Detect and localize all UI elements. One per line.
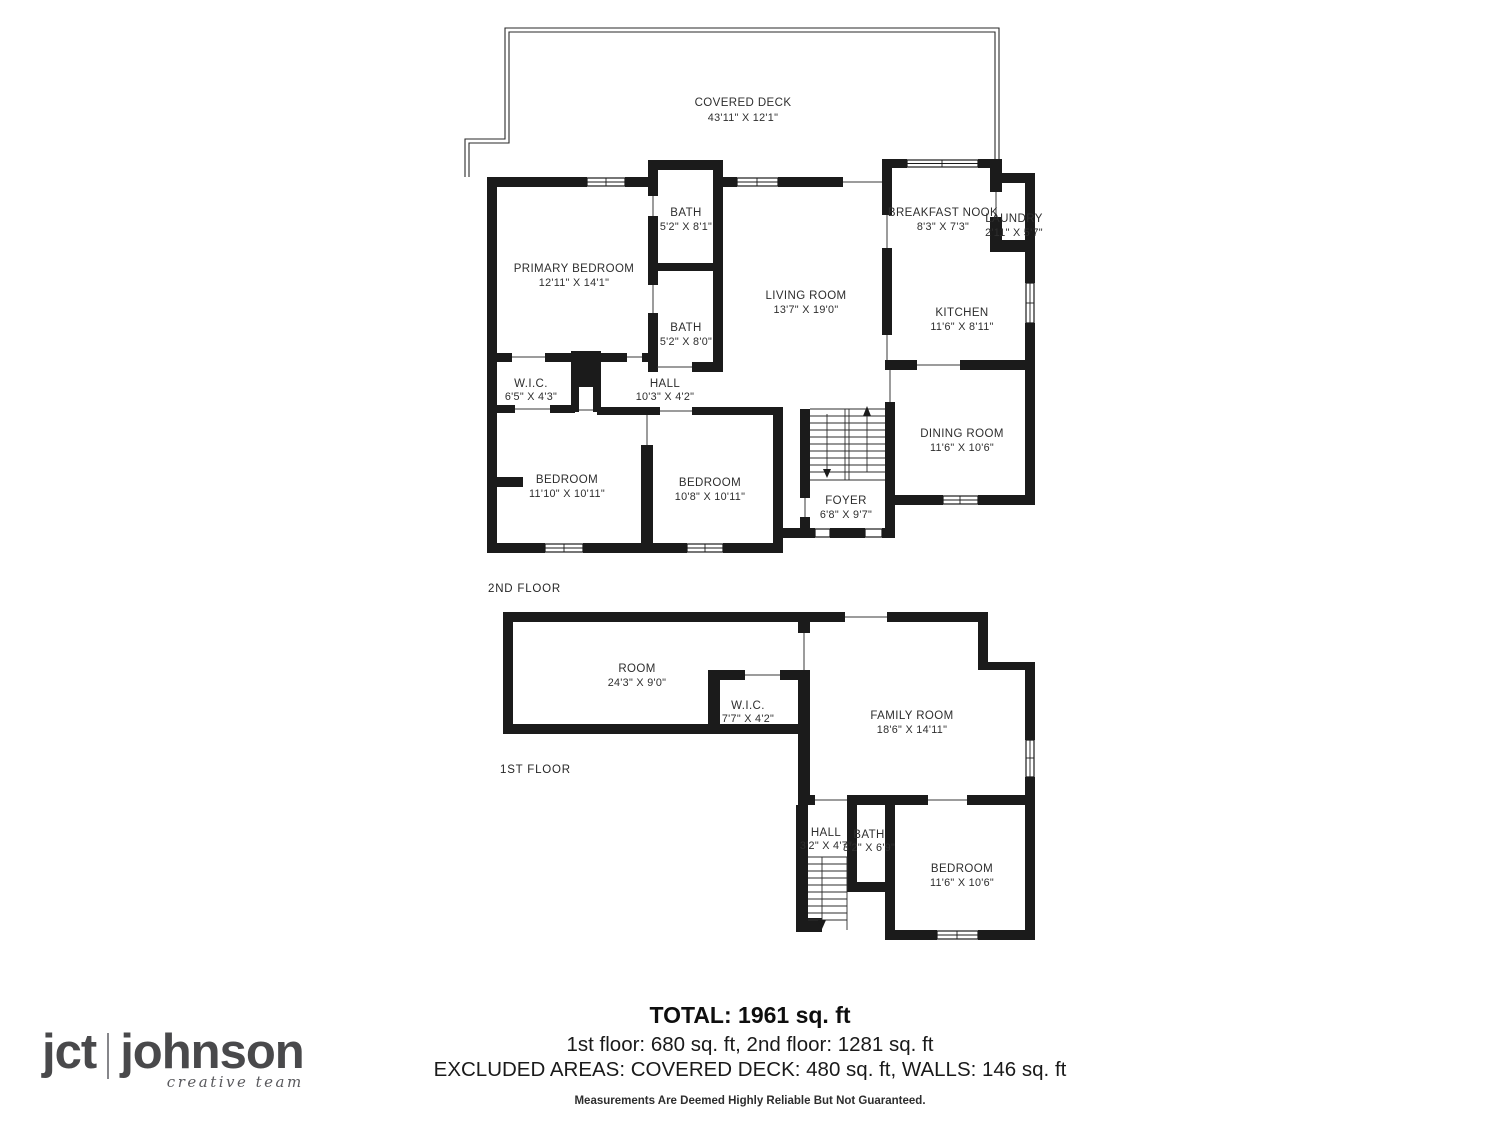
- kitchen-label: KITCHEN: [935, 307, 988, 319]
- floor-plan-page: COVERED DECK 43'11" X 12'1" PRIMARY BEDR…: [0, 0, 1500, 1125]
- company-logo: jct johnson creative team: [42, 1028, 304, 1091]
- floor-plan-canvas: COVERED DECK 43'11" X 12'1" PRIMARY BEDR…: [0, 0, 1500, 1000]
- logo-name: johnson: [120, 1028, 304, 1077]
- floor1-walls: [503, 612, 1035, 940]
- breakfast-nook-dims: 8'3" X 7'3": [917, 221, 969, 233]
- bedroom-left-label: BEDROOM: [536, 474, 598, 486]
- wic1-label: W.I.C.: [731, 700, 765, 712]
- disclaimer-text: Measurements Are Deemed Highly Reliable …: [0, 1095, 1500, 1107]
- room-label: ROOM: [618, 663, 655, 675]
- room-dims: 24'3" X 9'0": [608, 677, 667, 689]
- living-room-label: LIVING ROOM: [765, 290, 846, 302]
- family-room-dims: 18'6" X 14'11": [877, 724, 947, 736]
- hall2-label: HALL: [650, 378, 681, 390]
- dining-room-label: DINING ROOM: [920, 428, 1004, 440]
- breakfast-nook-label: BREAKFAST NOOK: [888, 207, 998, 219]
- living-room-dims: 13'7" X 19'0": [774, 304, 839, 316]
- bath1f-dims: 3'2" X 6'9": [843, 842, 895, 854]
- bedroom1f-label: BEDROOM: [931, 863, 993, 875]
- logo-divider: [107, 1033, 109, 1079]
- bath-lower-label: BATH: [670, 322, 701, 334]
- primary-bedroom-label: PRIMARY BEDROOM: [514, 263, 635, 275]
- bedroom1f-dims: 11'6" X 10'6": [930, 877, 994, 889]
- wic1-dims: 7'7" X 4'2": [722, 713, 774, 725]
- logo-mark: jct: [42, 1028, 96, 1077]
- primary-bedroom-dims: 12'11" X 14'1": [539, 277, 609, 289]
- floor1-title: 1ST FLOOR: [500, 764, 571, 776]
- family-room-label: FAMILY ROOM: [870, 710, 953, 722]
- bath-upper-label: BATH: [670, 207, 701, 219]
- foyer-dims: 6'8" X 9'7": [820, 509, 872, 521]
- foyer-label: FOYER: [825, 495, 867, 507]
- laundry-label: LAUNDRY: [985, 213, 1043, 225]
- floor2-title: 2ND FLOOR: [488, 583, 561, 595]
- floor2-labels: COVERED DECK 43'11" X 12'1" PRIMARY BEDR…: [488, 97, 1043, 595]
- deck-label: COVERED DECK: [695, 97, 792, 109]
- laundry-dims: 2'11" X 5'7": [985, 227, 1043, 239]
- floor1-openings: [745, 617, 967, 800]
- bath1f-label: BATH: [853, 829, 884, 841]
- bedroom-mid-label: BEDROOM: [679, 477, 741, 489]
- floor1-windows: [937, 740, 1034, 939]
- bedroom-mid-dims: 10'8" X 10'11": [675, 491, 745, 503]
- bedroom-left-dims: 11'10" X 10'11": [529, 488, 605, 500]
- wic2-dims: 6'5" X 4'3": [505, 391, 557, 403]
- dining-room-dims: 11'6" X 10'6": [930, 442, 994, 454]
- deck-dims: 43'11" X 12'1": [708, 112, 778, 124]
- hall1-label: HALL: [811, 827, 842, 839]
- floor1-labels: ROOM 24'3" X 9'0" W.I.C. 7'7" X 4'2" FAM…: [500, 663, 994, 889]
- wic2-label: W.I.C.: [514, 378, 548, 390]
- hall2-dims: 10'3" X 4'2": [636, 391, 695, 403]
- bath-lower-dims: 5'2" X 8'0": [660, 336, 712, 348]
- kitchen-dims: 11'6" X 8'11": [930, 321, 993, 333]
- floor2-stairs: [810, 406, 885, 480]
- bath-upper-dims: 5'2" X 8'1": [660, 221, 712, 233]
